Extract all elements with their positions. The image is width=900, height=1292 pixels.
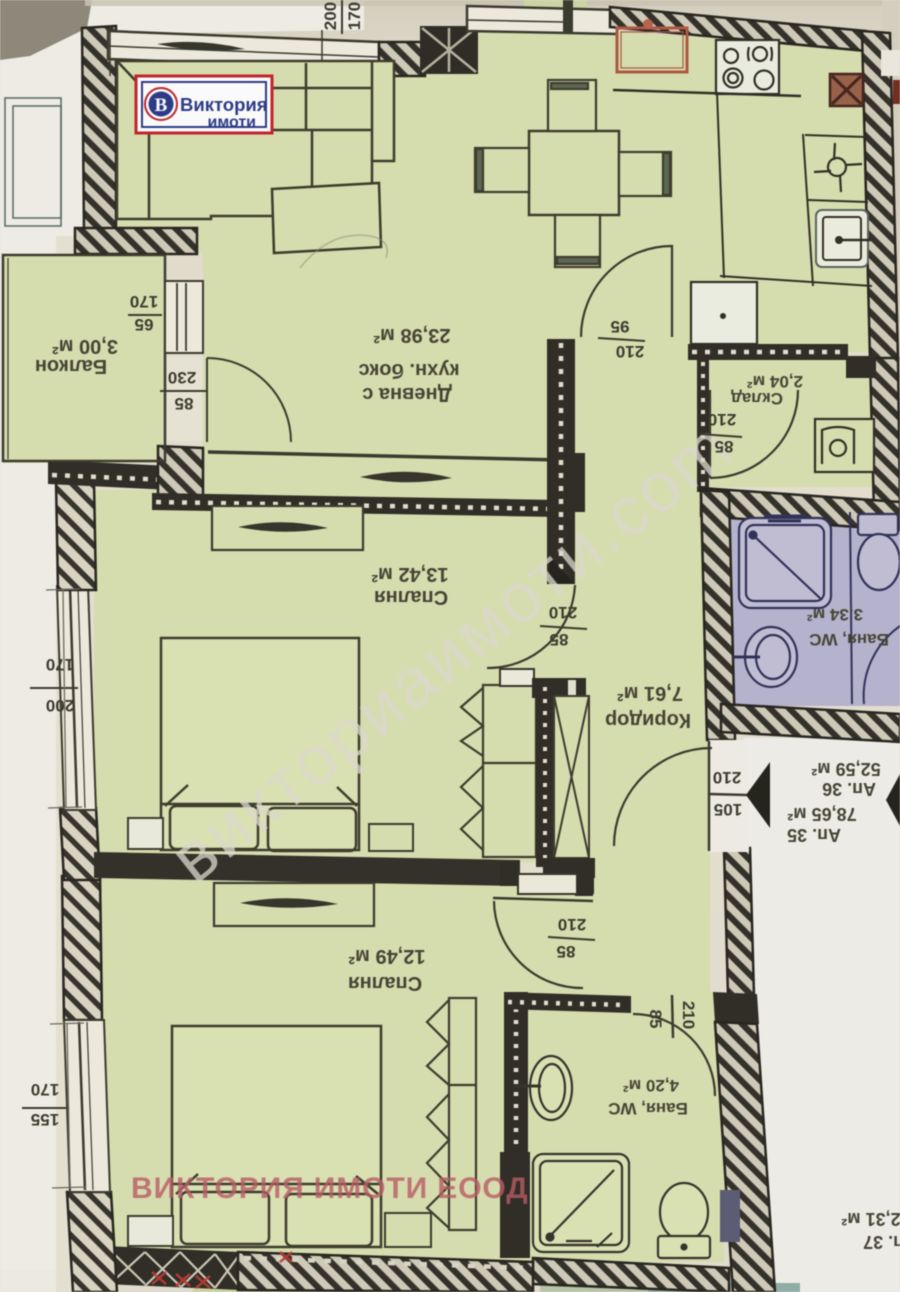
svg-text:210: 210: [708, 410, 736, 429]
svg-text:ВИКТОРИЯ ИМОТИ ЕООД: ВИКТОРИЯ ИМОТИ ЕООД: [131, 1172, 529, 1205]
svg-text:2,04 м²: 2,04 м²: [747, 372, 803, 391]
svg-text:85: 85: [715, 437, 734, 456]
svg-text:78,65 м²: 78,65 м²: [787, 804, 856, 824]
svg-text:Баня, WC: Баня, WC: [608, 1099, 688, 1118]
svg-text:Ап. 36: Ап. 36: [822, 779, 876, 799]
svg-text:85: 85: [175, 394, 194, 413]
svg-text:210: 210: [616, 342, 644, 361]
svg-text:4,20 м²: 4,20 м²: [623, 1076, 679, 1095]
svg-text:3,34 м²: 3,34 м²: [807, 605, 863, 624]
svg-text:Спалня: Спалня: [374, 586, 448, 608]
svg-text:13,42 м²: 13,42 м²: [371, 563, 448, 585]
svg-text:95: 95: [611, 317, 630, 336]
svg-text:210: 210: [679, 1001, 698, 1029]
svg-text:52,59 м²: 52,59 м²: [811, 759, 880, 779]
svg-text:210: 210: [713, 768, 741, 787]
svg-text:200: 200: [321, 2, 340, 30]
svg-text:210: 210: [558, 915, 586, 934]
svg-text:23,98 м²: 23,98 м²: [373, 324, 450, 346]
svg-text:85: 85: [646, 1010, 665, 1029]
svg-text:230: 230: [168, 368, 196, 387]
svg-text:7,61 м²: 7,61 м²: [617, 682, 683, 704]
svg-text:Ап. 37: Ап. 37: [863, 1232, 900, 1252]
svg-text:12,49 м²: 12,49 м²: [348, 945, 425, 967]
svg-text:имоти: имоти: [207, 114, 256, 131]
svg-text:210: 210: [549, 603, 577, 622]
svg-text:52,31 м²: 52,31 м²: [841, 1209, 900, 1229]
svg-text:Дневна с: Дневна с: [362, 383, 452, 405]
svg-text:65: 65: [135, 315, 154, 334]
svg-text:170: 170: [46, 655, 74, 674]
svg-text:Балкон: Балкон: [35, 355, 107, 377]
svg-text:170: 170: [130, 292, 158, 311]
svg-text:105: 105: [714, 800, 742, 819]
svg-text:Спалня: Спалня: [348, 972, 422, 994]
svg-text:170: 170: [31, 1080, 59, 1099]
svg-text:кухн. бокс: кухн. бокс: [358, 359, 459, 381]
svg-text:Склад: Склад: [731, 389, 783, 408]
svg-text:170: 170: [345, 2, 364, 30]
svg-text:155: 155: [31, 1110, 59, 1129]
svg-text:B: B: [155, 95, 168, 116]
svg-text:85: 85: [550, 630, 569, 649]
svg-text:200: 200: [46, 696, 74, 715]
svg-text:3,00 м²: 3,00 м²: [52, 335, 118, 357]
svg-text:Коридор: Коридор: [605, 709, 691, 731]
svg-text:Ап. 35: Ап. 35: [787, 825, 841, 845]
svg-text:Баня, WC: Баня, WC: [809, 630, 889, 649]
svg-text:85: 85: [557, 942, 576, 961]
svg-text:Виктория: Виктория: [180, 94, 268, 115]
